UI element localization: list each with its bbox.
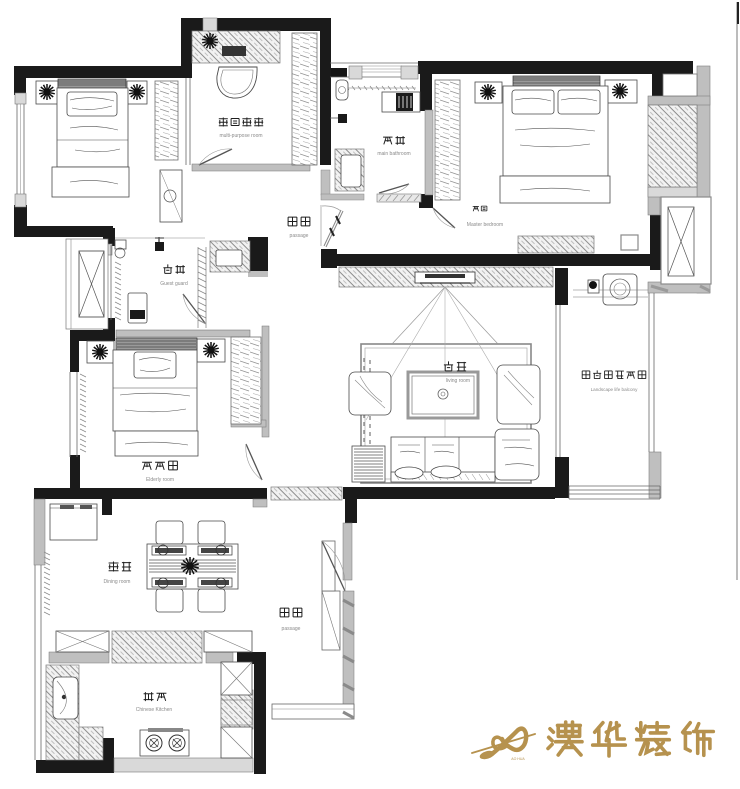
svg-text:Dining room: Dining room [104,579,131,585]
svg-text:main bathroom: main bathroom [377,151,410,157]
svg-text:passage: passage [282,626,301,632]
svg-text:passage: passage [290,233,309,239]
svg-text:Chinese Kitchen: Chinese Kitchen [136,707,173,713]
svg-text:Guest guard: Guest guard [160,281,188,287]
svg-text:AO HUA: AO HUA [511,757,525,761]
svg-text:multi-purpose room: multi-purpose room [219,133,262,139]
svg-text:Elderly room: Elderly room [146,477,174,483]
svg-text:living room: living room [446,378,470,384]
svg-text:Master bedroom: Master bedroom [467,222,503,228]
svg-text:Landscape life balcony: Landscape life balcony [591,387,638,392]
